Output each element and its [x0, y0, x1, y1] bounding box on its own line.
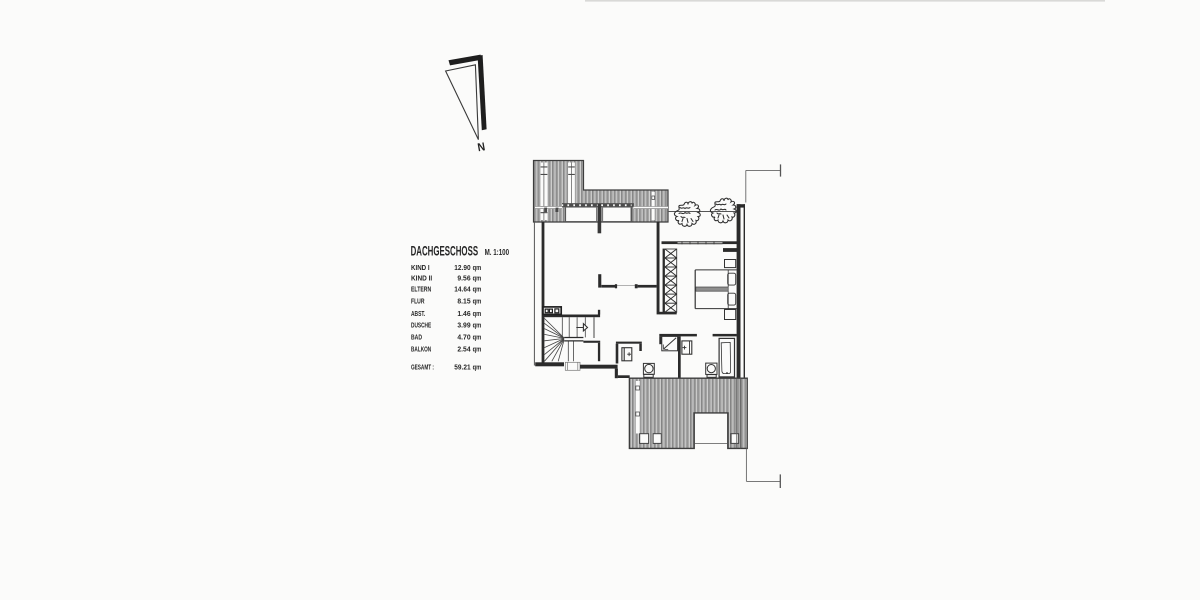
svg-text:FLUR: FLUR: [411, 296, 425, 305]
svg-text:qm: qm: [473, 296, 482, 305]
svg-text:8.15: 8.15: [457, 296, 471, 305]
svg-text:qm: qm: [473, 273, 482, 282]
svg-text:qm: qm: [473, 333, 482, 342]
svg-text:59.21: 59.21: [454, 363, 471, 372]
svg-text:qm: qm: [473, 263, 482, 272]
svg-text:BAD: BAD: [411, 333, 422, 342]
svg-text:M. 1:100: M. 1:100: [485, 248, 510, 257]
svg-text:2.54: 2.54: [457, 344, 471, 353]
svg-text:ABST.: ABST.: [411, 309, 425, 318]
svg-text:14.64: 14.64: [454, 284, 471, 293]
svg-text:DACHGESCHOSS: DACHGESCHOSS: [411, 244, 479, 259]
svg-text:qm: qm: [473, 363, 482, 372]
svg-text:KIND I: KIND I: [411, 263, 430, 272]
svg-text:qm: qm: [473, 344, 482, 353]
svg-text:1.46: 1.46: [457, 309, 470, 318]
svg-text:4.70: 4.70: [457, 333, 470, 342]
svg-text:qm: qm: [473, 309, 482, 318]
svg-text:KIND II: KIND II: [411, 273, 432, 282]
svg-text:qm: qm: [473, 284, 482, 293]
svg-text:3.99: 3.99: [457, 321, 470, 330]
svg-text:DUSCHE: DUSCHE: [411, 321, 431, 330]
svg-text:9.56: 9.56: [457, 273, 470, 282]
svg-text:qm: qm: [473, 321, 482, 330]
svg-text:BALKON: BALKON: [411, 344, 431, 353]
svg-text:GESAMT :: GESAMT :: [411, 363, 434, 372]
svg-text:ELTERN: ELTERN: [411, 284, 431, 293]
svg-text:12.90: 12.90: [454, 263, 470, 272]
